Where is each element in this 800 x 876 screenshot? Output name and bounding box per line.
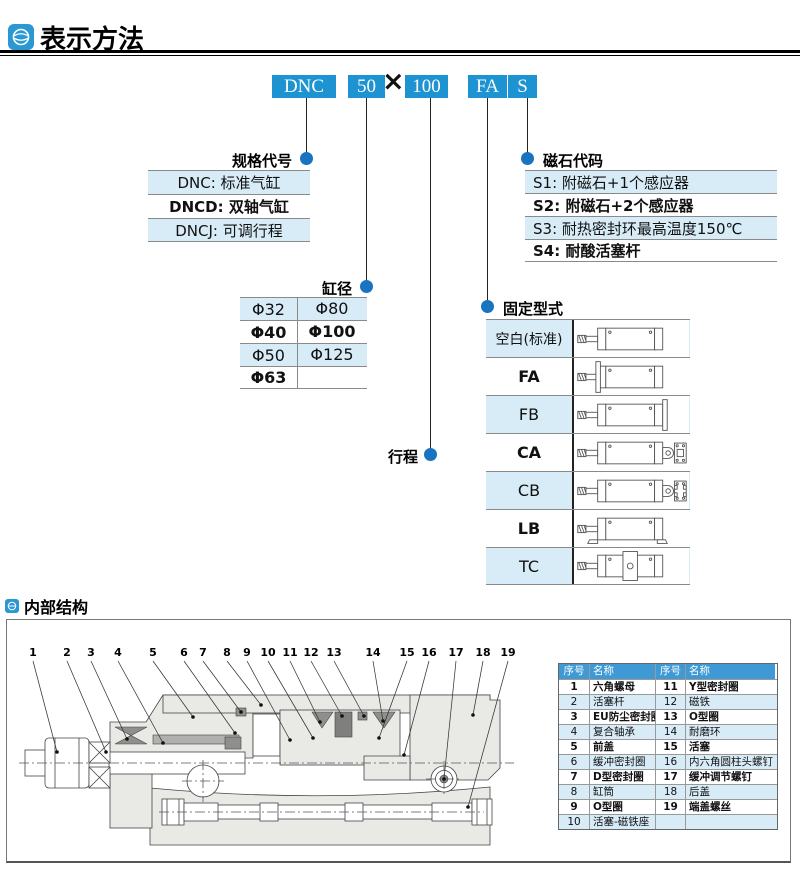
part-number-cell: 3 [559,710,589,724]
leader-dot [259,703,263,707]
dot-bore [360,280,373,293]
magnet-code-table: S1: 附磁石+1个感应器S2: 附磁石+2个感应器S3: 耐热密封环最高温度1… [525,170,777,262]
mounting-row: 空白(标准) [486,319,690,357]
section2-title: 内部结构 [24,594,88,618]
mounting-code: TC [486,557,572,576]
part-name-cell: 内六角圆柱头螺钉 [685,755,775,769]
bore-cell [297,367,366,388]
parts-row: 4复合轴承14耐磨环 [559,724,777,739]
part-number-cell: 4 [559,725,589,739]
part-name-cell: 缓冲调节螺钉 [685,770,775,784]
part-number-cell: 2 [559,695,589,709]
part-name-cell: O型圈 [685,710,775,724]
leader-dot [377,736,381,740]
leader-dot [125,737,129,741]
mounting-type-table: 空白(标准)FAFBCACBLBTC [486,319,690,585]
parts-row: 8缸筒18后盖 [559,784,777,799]
bore-row: Φ32Φ80 [240,297,367,320]
mounting-diagram [572,396,689,433]
mounting-cylinder-icon [576,512,688,546]
part-callout-number: 18 [475,646,490,659]
parts-row: 1六角螺母11Y型密封圈 [559,679,777,694]
mounting-cylinder-icon [576,398,688,432]
catalog-page: 表示方法 DNC 50 × 100 FA S 规格代号 缸径 行程 磁石代码 固… [0,0,800,876]
parts-row: 5前盖15活塞 [559,739,777,754]
parts-list-table: 序号名称序号名称1六角螺母11Y型密封圈2活塞杆12磁铁3EU防尘密封圈13O型… [558,663,778,830]
magnet-code-text: S1: 附磁石+1个感应器 [525,172,689,193]
spec-code-text: DNC: 标准气缸 [148,172,310,193]
part-callout-number: 19 [500,646,515,659]
leader-dot [466,805,470,809]
label-stroke: 行程 [320,446,418,467]
leader-line [33,661,57,752]
part-name-cell: 磁铁 [685,695,775,709]
mounting-diagram [572,320,689,357]
bore-cell: Φ50 [240,346,297,365]
label-magnet-code: 磁石代码 [543,150,603,171]
connector-bore [366,98,367,281]
leader-dot [288,738,292,742]
part-number-cell: 1 [559,680,589,694]
part-number-cell [655,815,685,829]
part-number-cell: 12 [655,695,685,709]
parts-row: 10活塞-磁铁座 [559,814,777,829]
part-callout-number: 6 [180,646,188,659]
part-name-cell: O型圈 [589,800,655,814]
mounting-diagram [572,510,689,547]
logo-glyph-icon [11,27,31,47]
part-number-cell: 8 [559,785,589,799]
part-number-cell: 5 [559,740,589,754]
leader-dot [362,714,366,718]
label-spec-code: 规格代号 [166,150,292,171]
part-number-cell: 17 [655,770,685,784]
part-callout-number: 4 [114,646,122,659]
parts-row: 3EU防尘密封圈13O型圈 [559,709,777,724]
bore-cell: Φ40 [240,323,297,342]
rear-cover [410,695,500,780]
part-number-cell: 13 [655,710,685,724]
model-segment-magnet: S [508,75,537,98]
part-name-cell: 六角螺母 [589,680,655,694]
bore-cell: Φ80 [297,298,366,320]
mounting-diagram [572,472,689,509]
part-callout-number: 12 [303,646,318,659]
part-name-cell: 复合轴承 [589,725,655,739]
leader-dot [161,741,165,745]
part-name-cell: 活塞杆 [589,695,655,709]
spec-code-row: DNCD: 双轴气缸 [148,194,310,218]
part-name-cell: 缓冲密封圈 [589,755,655,769]
parts-row: 7D型密封圈17缓冲调节螺钉 [559,769,777,784]
parts-row: 9O型圈19端盖螺丝 [559,799,777,814]
leader-dot [191,715,195,719]
section-logo-icon [8,24,34,50]
leader-dot [381,719,385,723]
mounting-diagram [572,548,689,584]
part-callout-number: 9 [243,646,251,659]
spec-code-text: DNCJ: 可调行程 [148,220,310,241]
model-segment-stroke: 100 [405,75,448,98]
mounting-row: LB [486,509,690,547]
part-callout-number: 15 [399,646,414,659]
dot-stroke [424,448,437,461]
leader-dot [402,753,406,757]
part-number-cell: 11 [655,680,685,694]
connector-stroke [430,98,431,449]
mounting-row: FA [486,357,690,395]
dot-mounting [481,300,494,313]
mounting-code: CB [486,481,572,500]
leader-dot [318,720,322,724]
part-callout-number: 5 [149,646,157,659]
bore-cell: Φ63 [240,368,297,387]
mounting-code: FB [486,405,572,424]
model-segment-mounting: FA [468,75,507,98]
part-callout-number: 11 [282,646,297,659]
leader-dot [104,750,108,754]
bore-row: Φ50Φ125 [240,343,367,366]
mounting-cylinder-icon [576,436,688,470]
part-name-cell: D型密封圈 [589,770,655,784]
part-name-cell: 端盖螺丝 [685,800,775,814]
leader-dot [239,710,243,714]
part-callout-number: 10 [260,646,276,659]
dot-magnet [521,152,534,165]
spec-code-row: DNC: 标准气缸 [148,170,310,194]
part-callout-number: 17 [448,646,463,659]
magnet-code-row: S1: 附磁石+1个感应器 [525,170,777,193]
label-bore: 缸径 [250,278,352,299]
leader-dot [311,736,315,740]
leader-dot [340,714,344,718]
part-name-cell: 活塞-磁铁座 [589,815,655,829]
parts-header-row: 序号名称序号名称 [559,664,777,679]
leader-dot [55,750,59,754]
mounting-diagram [572,358,689,395]
part-callout-number: 2 [63,646,71,659]
model-segment-bore: 50 [348,75,385,98]
magnet-code-row: S2: 附磁石+2个感应器 [525,193,777,216]
parts-header-cell: 名称 [589,664,655,679]
part-callout-number: 14 [365,646,381,659]
mounting-cylinder-icon [576,549,688,583]
part-number-cell: 10 [559,815,589,829]
multiply-sign: × [382,68,405,95]
magnet-code-text: S4: 耐酸活塞杆 [525,240,640,261]
section2-logo-icon [5,599,19,613]
spec-code-table: DNC: 标准气缸DNCD: 双轴气缸DNCJ: 可调行程 [148,170,310,242]
parts-header-cell: 名称 [685,664,775,679]
mounting-row: CB [486,471,690,509]
mounting-row: FB [486,395,690,433]
mounting-code: CA [486,443,572,462]
part-name-cell: 后盖 [685,785,775,799]
magnet-code-text: S3: 耐热密封环最高温度150℃ [525,218,742,239]
part-name-cell: 活塞 [685,740,775,754]
magnet-code-text: S2: 附磁石+2个感应器 [525,195,693,216]
part-name-cell: Y型密封圈 [685,680,775,694]
part-number-cell: 9 [559,800,589,814]
mounting-row: CA [486,433,690,471]
mounting-code: FA [486,367,572,386]
parts-header-cell: 序号 [655,664,685,679]
leader-dot [442,777,446,781]
part-callout-number: 8 [223,646,231,659]
part-name-cell: 缸筒 [589,785,655,799]
mounting-code: LB [486,519,572,538]
spec-code-row: DNCJ: 可调行程 [148,218,310,242]
part-name-cell: EU防尘密封圈 [589,710,655,724]
connector-spec [306,98,307,152]
part-name-cell: 耐磨环 [685,725,775,739]
part-callout-number: 7 [199,646,207,659]
leader-line [91,661,127,739]
title-rule-thin [0,55,800,56]
parts-row: 6缓冲密封圈16内六角圆柱头螺钉 [559,754,777,769]
part-callout-number: 16 [421,646,437,659]
part-number-cell: 15 [655,740,685,754]
mounting-cylinder-icon [576,360,688,394]
bore-cell: Φ125 [297,344,366,366]
part-name-cell: 前盖 [589,740,655,754]
mounting-cylinder-icon [576,474,688,508]
bore-row: Φ40Φ100 [240,320,367,343]
leader-dot [233,731,237,735]
magnet-code-row: S3: 耐热密封环最高温度150℃ [525,216,777,239]
dot-spec [300,152,313,165]
parts-header-cell: 序号 [559,664,589,679]
bore-cell: Φ100 [297,321,366,343]
bore-cell: Φ32 [240,300,297,319]
parts-row: 2活塞杆12磁铁 [559,694,777,709]
model-segment-series: DNC [272,75,336,98]
bore-table: Φ32Φ80Φ40Φ100Φ50Φ125Φ63 [240,297,367,389]
mounting-code: 空白(标准) [486,329,572,349]
part-callout-number: 3 [87,646,95,659]
part-number-cell: 6 [559,755,589,769]
magnet-code-row: S4: 耐酸活塞杆 [525,239,777,262]
part-name-cell [685,815,775,829]
cylinder-cross-section-drawing: 12345678910111213141516171819 [14,638,559,853]
connector-magnet [527,98,528,153]
connector-mounting [487,98,488,301]
part-number-cell: 7 [559,770,589,784]
bore-row: Φ63 [240,366,367,389]
title-rule-thick [0,50,800,53]
part-callout-number: 1 [29,646,37,659]
logo-glyph-small-icon [7,601,17,611]
label-mounting-type: 固定型式 [503,298,563,319]
part-number-cell: 16 [655,755,685,769]
part-number-cell: 18 [655,785,685,799]
part-number-cell: 19 [655,800,685,814]
mounting-row: TC [486,547,690,585]
mounting-diagram [572,434,689,471]
part-number-cell: 14 [655,725,685,739]
leader-dot [471,713,475,717]
spec-code-text: DNCD: 双轴气缸 [148,196,310,217]
part-callout-number: 13 [326,646,341,659]
mounting-cylinder-icon [576,322,688,356]
